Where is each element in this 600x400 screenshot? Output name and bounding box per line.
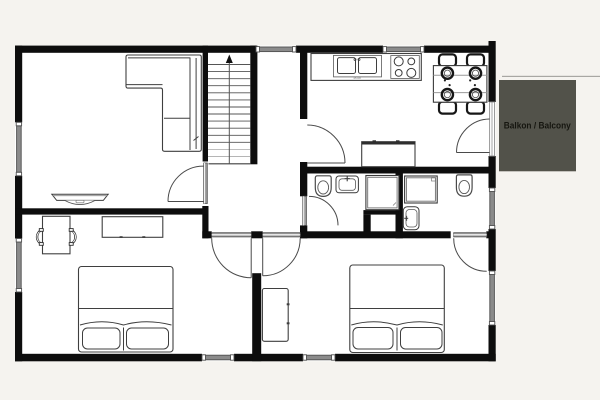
svg-text:35.08: 35.08: [353, 76, 361, 80]
svg-text:Balkon / Balcony: Balkon / Balcony: [504, 121, 572, 131]
